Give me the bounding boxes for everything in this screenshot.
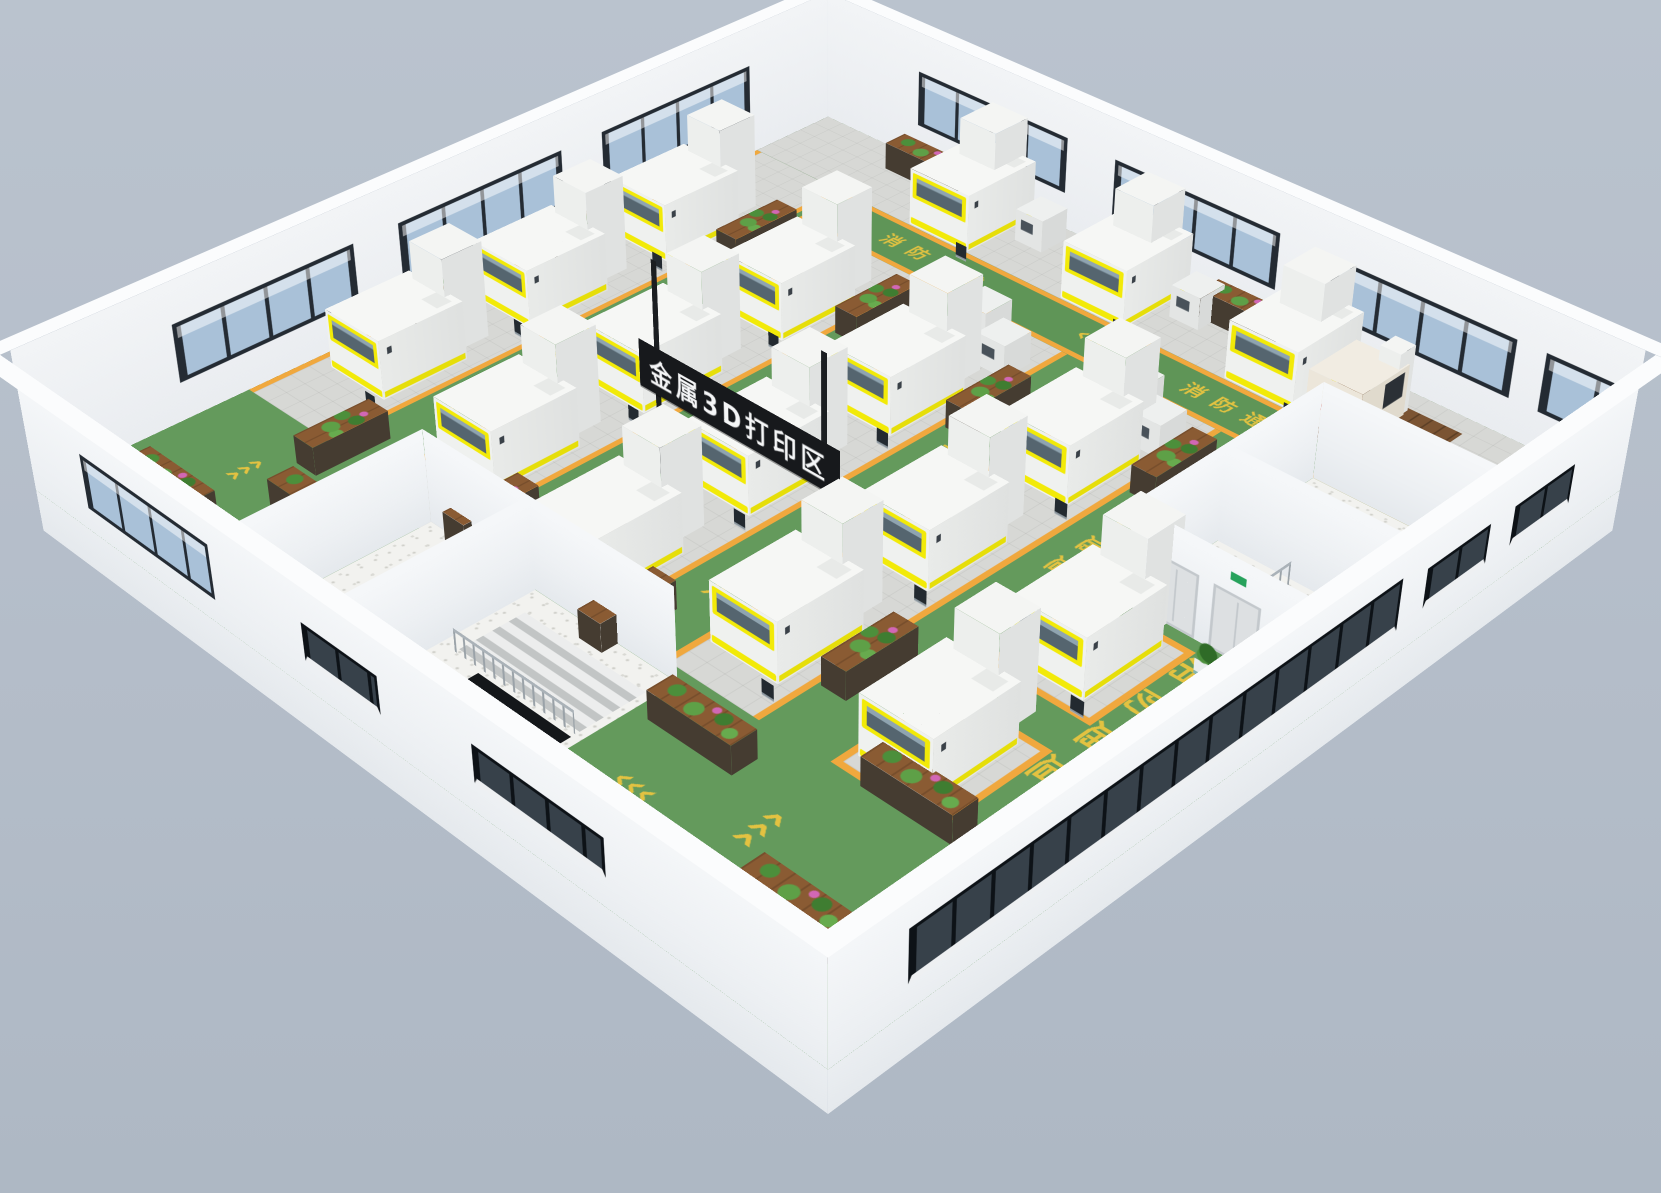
window-band (1509, 464, 1575, 546)
exit-sign-icon (1230, 571, 1246, 587)
printer-vent (788, 288, 792, 296)
printer-vent (756, 460, 761, 469)
printer-vent (1132, 275, 1136, 283)
printer-vent (897, 381, 901, 390)
printer-vent (1093, 641, 1098, 651)
printer-vent (499, 435, 504, 444)
floor-plane: 消防通道‹‹‹‹‹‹消防通道‹‹‹消防通道‹‹‹‹‹‹消防通道‹‹‹消防通道‹‹… (36, 117, 1620, 1070)
printer-vent (941, 742, 946, 752)
printer-vent (1076, 450, 1080, 459)
printer-vent (1303, 357, 1307, 366)
printer-vent (387, 346, 392, 355)
printer-vent (936, 534, 941, 543)
printer-vent (785, 625, 790, 635)
printer-vent (974, 200, 978, 208)
printer-vent (672, 210, 676, 218)
window-band (1422, 524, 1491, 609)
printer-vent (534, 275, 539, 283)
factory-3d-overview: 消防通道‹‹‹‹‹‹消防通道‹‹‹消防通道‹‹‹‹‹‹消防通道‹‹‹消防通道‹‹… (0, 0, 1661, 1193)
